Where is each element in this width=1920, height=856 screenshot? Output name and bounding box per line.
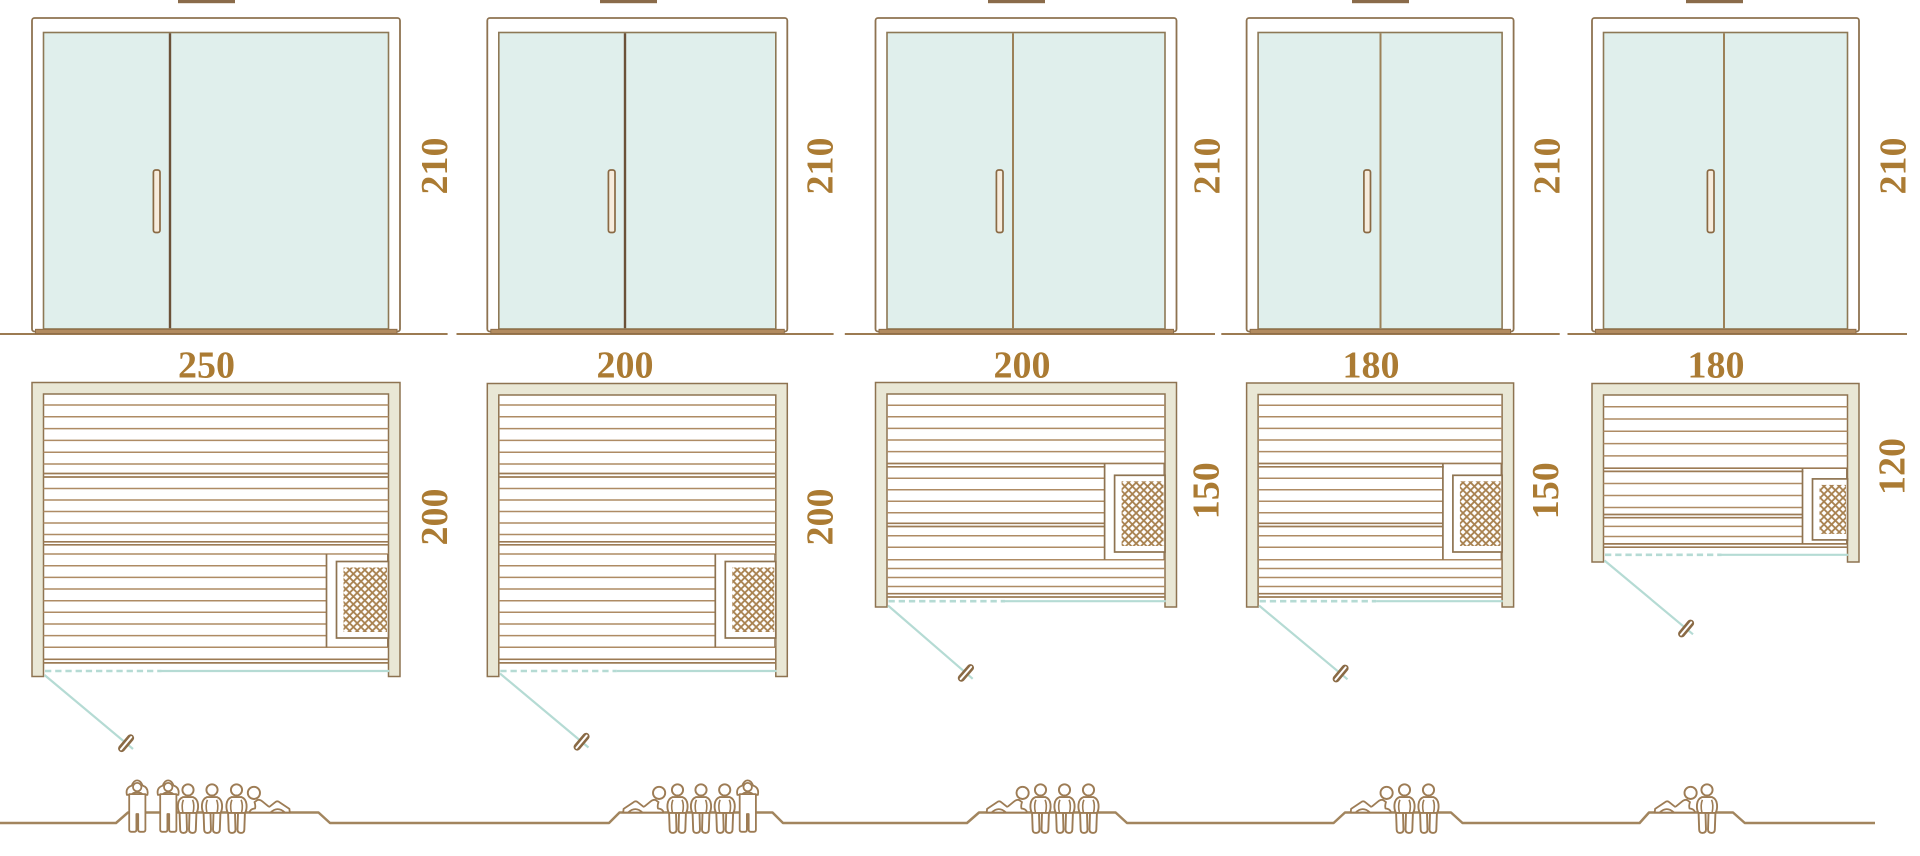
- svg-text:210: 210: [414, 138, 456, 195]
- svg-text:200: 200: [597, 345, 654, 387]
- svg-text:210: 210: [800, 138, 842, 195]
- svg-text:210: 210: [1873, 138, 1915, 195]
- svg-text:250: 250: [178, 345, 235, 387]
- svg-text:150: 150: [1525, 462, 1567, 519]
- svg-text:180: 180: [1688, 345, 1745, 387]
- svg-text:210: 210: [1527, 138, 1569, 195]
- svg-text:200: 200: [800, 489, 842, 546]
- svg-text:180: 180: [1343, 345, 1400, 387]
- svg-text:200: 200: [414, 489, 456, 546]
- svg-text:150: 150: [1185, 462, 1227, 519]
- svg-text:210: 210: [1187, 138, 1229, 195]
- svg-text:200: 200: [994, 345, 1051, 387]
- svg-text:120: 120: [1872, 438, 1914, 495]
